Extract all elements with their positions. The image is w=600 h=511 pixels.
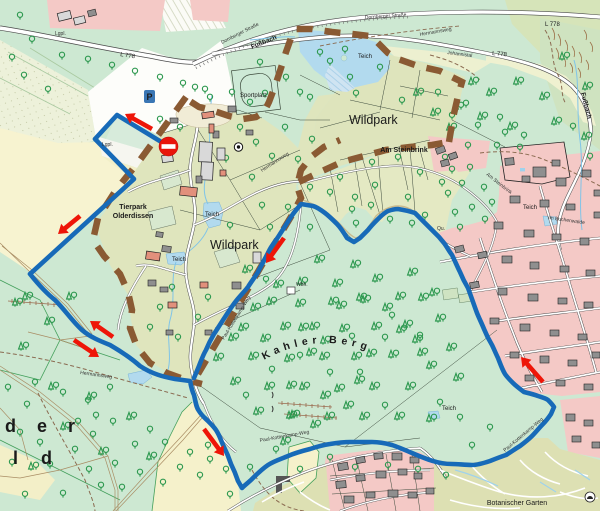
svg-text:Teich: Teich [205, 212, 219, 218]
svg-text:Wildpark: Wildpark [210, 238, 259, 252]
svg-text:Wildpark: Wildpark [349, 113, 398, 127]
svg-text:Am Steinbrink: Am Steinbrink [380, 147, 428, 154]
svg-text:Teich: Teich [442, 406, 456, 412]
svg-text:l d: l d [13, 448, 61, 468]
svg-text:Lgpl.: Lgpl. [102, 142, 113, 148]
svg-text:Botanischer Garten: Botanischer Garten [487, 500, 547, 507]
svg-text:P: P [146, 92, 152, 102]
svg-text:Teich: Teich [358, 54, 372, 60]
svg-text:Lgpl.: Lgpl. [55, 31, 66, 37]
svg-text:Sportplatz: Sportplatz [240, 93, 267, 99]
svg-text:Qu.: Qu. [437, 226, 445, 232]
svg-text:Tierpark: Tierpark [119, 204, 147, 211]
svg-text:Olderdissen: Olderdissen [113, 213, 153, 220]
svg-text:Teich: Teich [172, 257, 186, 263]
svg-text:d e r: d e r [5, 416, 83, 436]
svg-text:L 778: L 778 [545, 22, 560, 28]
svg-text:Wbh.: Wbh. [296, 282, 308, 288]
svg-text:Teich: Teich [523, 205, 537, 211]
